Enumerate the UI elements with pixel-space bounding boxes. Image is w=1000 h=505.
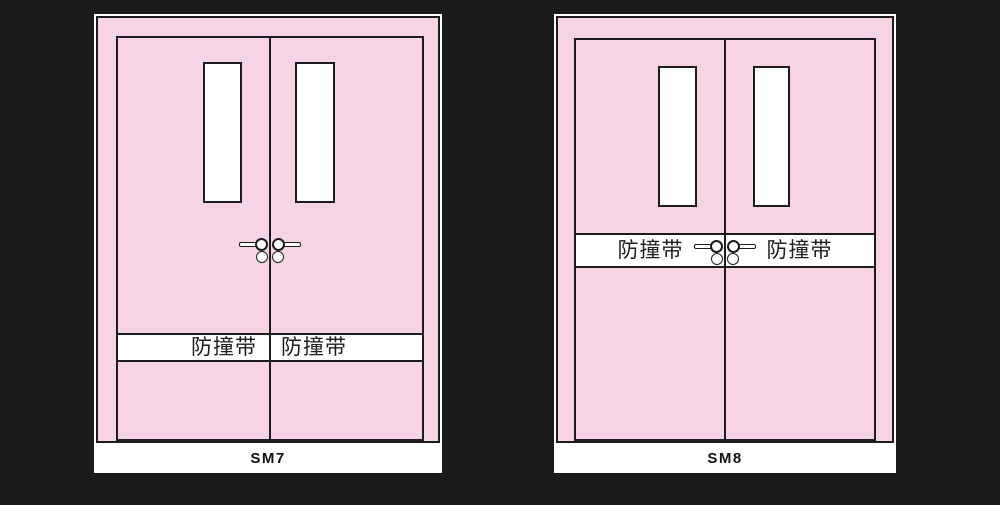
model-label-bar: SM7 [94, 444, 442, 473]
door-frame: 防撞带 防撞带 [96, 16, 440, 443]
band-label-right: 防撞带 [281, 337, 347, 358]
door-diagram-stage: 防撞带 防撞带 SM7 [0, 0, 1000, 505]
door-leaves: 防撞带 防撞带 [574, 38, 876, 441]
handle-ring-right-icon [272, 238, 285, 251]
band-label-left: 防撞带 [618, 240, 684, 261]
lock-cylinder-right-icon [727, 253, 739, 265]
vision-panel-window-right [295, 62, 335, 203]
door-hardware [239, 237, 301, 263]
vision-panel-window-right [753, 66, 790, 207]
model-label: SM7 [250, 450, 285, 467]
handle-ring-right-icon [727, 240, 740, 253]
band-label-left: 防撞带 [191, 337, 257, 358]
vision-panel-window-left [203, 62, 242, 203]
door-leaves: 防撞带 防撞带 [116, 36, 424, 441]
handle-ring-left-icon [710, 240, 723, 253]
door-frame: 防撞带 防撞带 [556, 16, 894, 443]
handle-ring-left-icon [255, 238, 268, 251]
model-label-bar: SM8 [554, 444, 896, 473]
lock-cylinder-left-icon [256, 251, 268, 263]
band-label-right: 防撞带 [767, 240, 833, 261]
lock-cylinder-left-icon [711, 253, 723, 265]
door-figure-sm8: 防撞带 防撞带 SM8 [556, 16, 894, 473]
band-right-half: 防撞带 [270, 335, 422, 360]
vision-panel-window-left [658, 66, 697, 207]
lock-cylinder-right-icon [272, 251, 284, 263]
model-label: SM8 [707, 450, 742, 467]
door-figure-sm7: 防撞带 防撞带 SM7 [96, 16, 440, 473]
band-left-half: 防撞带 [118, 335, 270, 360]
door-hardware [694, 239, 756, 265]
